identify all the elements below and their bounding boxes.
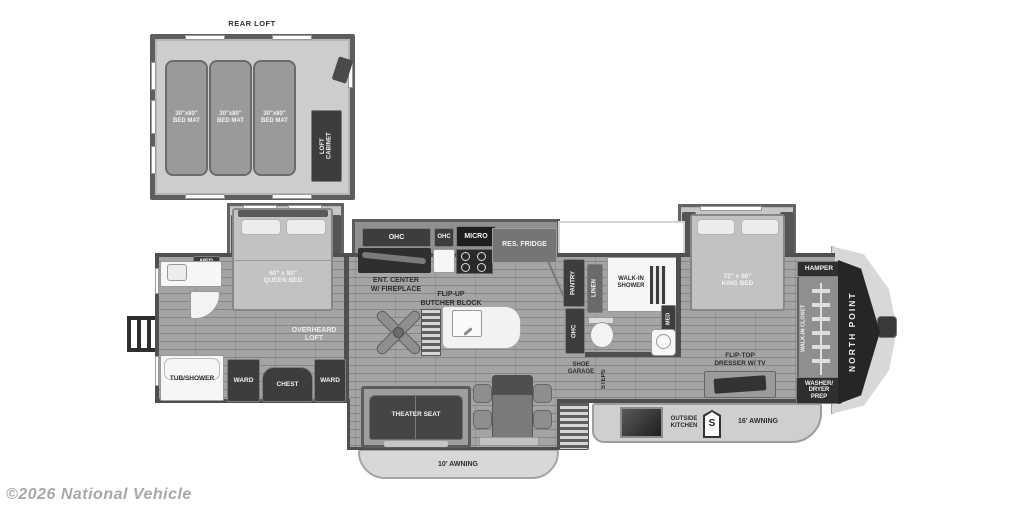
rear-window-1 (155, 268, 159, 294)
brand-label: NORTH POINT (842, 272, 864, 392)
ohc-left: OHC (362, 228, 431, 247)
queen-fold-line (233, 260, 332, 261)
dinette-chair-2 (473, 410, 492, 429)
theater-seat-label: THEATER SEAT (369, 409, 463, 421)
king-bed-label: 72" x 80" KING BED (695, 268, 780, 292)
loft-bed-mat-1: 30"x80" BED MAT (165, 60, 208, 176)
butcher-block-leaf (421, 309, 441, 356)
dinette-chair-3 (533, 384, 552, 403)
queen-pillow-right (286, 219, 326, 235)
bath-sink (167, 264, 187, 281)
kitchen-counter (433, 249, 455, 273)
king-pillow-left (697, 219, 735, 235)
shoe-garage-label: SHOE GARAGE (562, 360, 600, 378)
loft-bed-mat-2: 30"x80" BED MAT (209, 60, 252, 176)
mid-toilet (590, 322, 614, 348)
dinette-chair-1 (473, 384, 492, 403)
mid-bath-sink-bowl (656, 334, 671, 349)
floorplan-canvas: REAR LOFT 30"x80" BED MAT 30"x80" BED MA… (0, 0, 1024, 512)
burner-2 (477, 252, 486, 261)
loft-window-bottom-2 (272, 194, 312, 199)
awning-10-label: 10' AWNING (408, 459, 508, 471)
chest: CHEST (262, 367, 313, 402)
hamper: HAMPER (797, 261, 841, 277)
s-badge: S (705, 412, 719, 436)
loft-cabinet: LOFT CABINET (311, 110, 342, 182)
watermark: ©2026 National Vehicle (6, 486, 306, 506)
hull-wall-bottom-right (557, 399, 835, 403)
entry-door-bay (558, 221, 685, 256)
ceiling-fan-hub (393, 327, 404, 338)
dinette-table-top (492, 375, 533, 395)
loft-window-top-2 (272, 35, 312, 40)
wardrobe-right: WARD (314, 359, 346, 402)
hitch-pin (877, 316, 897, 338)
closet-hangers (812, 289, 830, 371)
wardrobe-left: WARD (227, 359, 260, 402)
pantry: PANTRY (563, 259, 585, 307)
queen-bed-label: 60" x 80" QUEEN BED (237, 265, 329, 289)
tub-shower-label: TUB/SHOWER (158, 373, 226, 385)
loft-bed-mat-3: 30"x80" BED MAT (253, 60, 296, 176)
queen-pillow-left (241, 219, 281, 235)
burner-4 (477, 263, 486, 272)
slide-wall-left (347, 400, 350, 450)
burner-1 (461, 252, 470, 261)
steps-label: STEPS (598, 360, 611, 398)
loft-window-bottom-1 (185, 194, 225, 199)
slide-wall-right (557, 403, 560, 450)
mid-ohc: OHC (565, 308, 585, 354)
bath-wall-right (676, 257, 681, 357)
walk-in-shower-label: WALK-IN SHOWER (609, 274, 653, 292)
outside-kitchen-label: OUTSIDE KITCHEN (665, 413, 703, 433)
king-pillow-right (741, 219, 779, 235)
mid-med-cabinet: MED (661, 305, 676, 332)
linen-closet: LINEN (587, 264, 603, 313)
ohc-right: OHC (434, 228, 454, 247)
overhead-loft-label: OVERHEARD LOFT (283, 325, 345, 345)
loft-window-left-1 (151, 62, 156, 90)
queen-headboard (238, 210, 328, 217)
loft-window-top-1 (185, 35, 225, 40)
burner-3 (461, 263, 470, 272)
washer-dryer-prep: WASHER/ DRYER PREP (796, 377, 842, 404)
king-slide-window (700, 206, 762, 211)
rear-loft-title: REAR LOFT (214, 18, 290, 30)
loft-window-left-3 (151, 146, 156, 174)
walk-in-closet-label: WALK-IN CLOSET (798, 283, 809, 373)
loft-window-left-2 (151, 100, 156, 134)
dinette-chair-4 (533, 410, 552, 429)
awning-16-label: 16' AWNING (732, 416, 784, 428)
dresser-label: FLIP-TOP DRESSER W/ TV (700, 350, 780, 369)
dinette-bench (479, 437, 539, 446)
outside-kitchen-box (620, 407, 663, 438)
microwave: MICRO (456, 226, 496, 247)
theater-footrest (384, 441, 448, 447)
